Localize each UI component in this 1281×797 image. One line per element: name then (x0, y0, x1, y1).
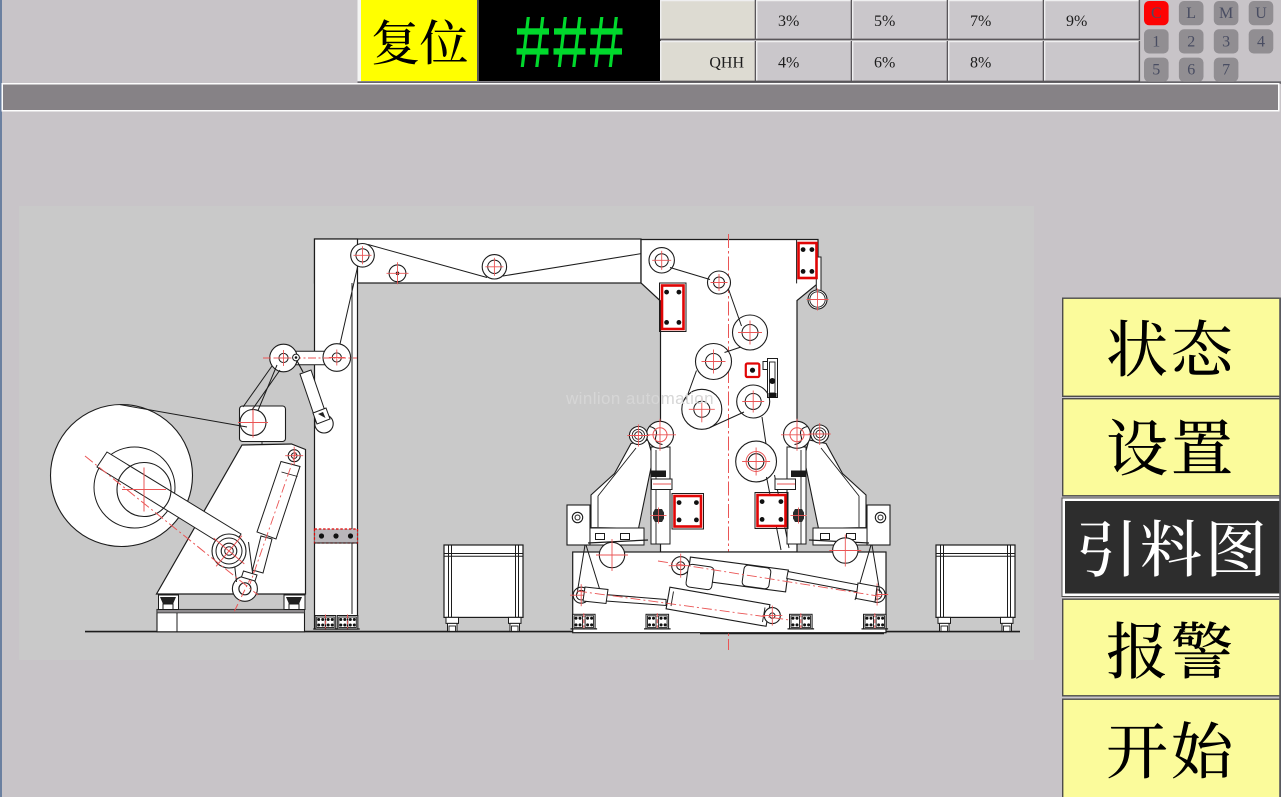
svg-text:7%: 7% (970, 13, 991, 30)
svg-text:QHH: QHH (709, 55, 744, 72)
svg-text:M: M (1219, 5, 1233, 22)
svg-text:2: 2 (1187, 33, 1195, 50)
svg-text:L: L (1186, 5, 1196, 22)
svg-text:5: 5 (1152, 62, 1160, 79)
svg-text:C: C (1151, 5, 1162, 22)
svg-text:3: 3 (1222, 33, 1230, 50)
svg-text:U: U (1255, 5, 1267, 22)
svg-text:8%: 8% (970, 55, 991, 72)
svg-text:6: 6 (1187, 62, 1195, 79)
svg-text:3%: 3% (778, 13, 799, 30)
svg-text:5%: 5% (874, 13, 895, 30)
svg-text:6%: 6% (874, 55, 895, 72)
svg-text:9%: 9% (1066, 13, 1087, 30)
svg-text:1: 1 (1152, 33, 1160, 50)
svg-text:4%: 4% (778, 55, 799, 72)
svg-text:4: 4 (1257, 33, 1265, 50)
svg-text:7: 7 (1222, 62, 1230, 79)
svg-text:winlion automation: winlion automation (565, 389, 714, 408)
